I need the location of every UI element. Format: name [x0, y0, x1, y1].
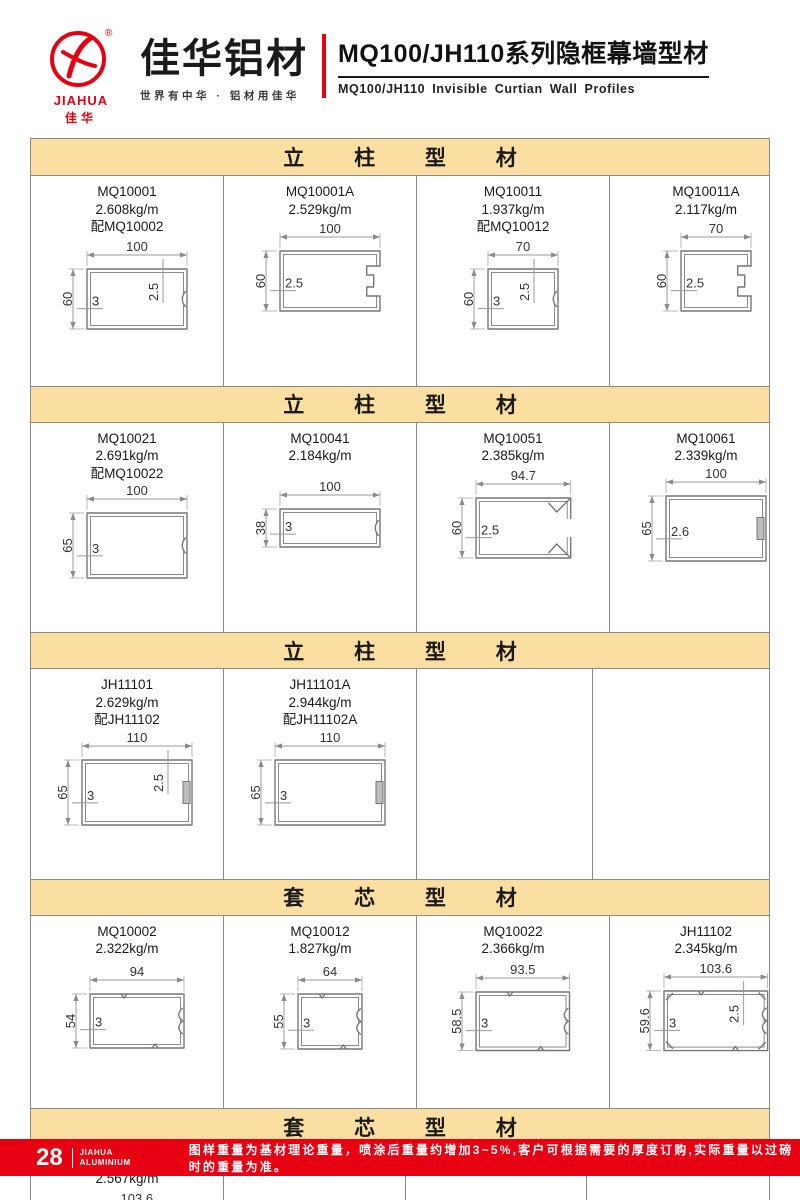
svg-text:65: 65 — [60, 539, 75, 553]
profile-match: 配MQ10012 — [417, 218, 609, 236]
section-header-label: 立 柱 型 材 — [283, 142, 539, 172]
profile-cell-mq10041: MQ100412.184kg/m100383 — [224, 423, 417, 633]
profile-weight: 2.529kg/m — [224, 201, 416, 219]
svg-text:60: 60 — [60, 291, 75, 305]
footer-disclaimer: 图样重量为基材理论重量，喷涂后重量约增加3~5%,客户可根据需要的厚度订购,实际… — [189, 1141, 800, 1175]
catalog-body: 立 柱 型 材MQ100012.608kg/m配MQ100021006032.5… — [30, 138, 770, 1200]
profile-diagram-mq10061: 100652.6 — [610, 465, 800, 615]
svg-text:59.6: 59.6 — [637, 1008, 652, 1033]
profile-diagram-jh11101a: 110653 — [224, 729, 416, 879]
profile-label: MQ100212.691kg/m配MQ10022 — [31, 430, 223, 483]
profile-weight: 1.827kg/m — [224, 940, 416, 958]
profile-diagram-mq10011: 706032.5 — [417, 236, 609, 386]
svg-text:2.5: 2.5 — [727, 1005, 742, 1023]
profile-row-3: JH111012.629kg/m配JH111021106532.5JH11101… — [31, 668, 769, 879]
logo-text-en: JIAHUA — [30, 93, 132, 108]
profile-label: MQ100512.385kg/m — [417, 430, 609, 465]
profile-cell-mq10051: MQ100512.385kg/m94.7602.5 — [417, 423, 610, 633]
section-header-label: 套 芯 型 材 — [283, 882, 539, 912]
svg-text:70: 70 — [709, 221, 723, 236]
profile-match: 配MQ10022 — [31, 465, 223, 483]
profile-diagram-mq10001: 1006032.5 — [31, 236, 223, 386]
svg-text:60: 60 — [449, 521, 464, 535]
footer-divider — [72, 1148, 73, 1168]
profile-cell-mq10011: MQ100111.937kg/m配MQ10012706032.5 — [417, 176, 610, 386]
page-subtitle: MQ100/JH110 Invisible Curtian Wall Profi… — [338, 82, 709, 96]
profile-diagram-mq10021: 100653 — [31, 482, 223, 632]
svg-text:100: 100 — [126, 483, 148, 498]
svg-text:60: 60 — [253, 274, 268, 288]
profile-cell-mq10021: MQ100212.691kg/m配MQ10022100653 — [31, 423, 224, 633]
section-header-label: 套 芯 型 材 — [283, 1112, 539, 1142]
profile-label: JH11101A2.944kg/m配JH11102A — [224, 676, 416, 729]
profile-weight: 2.691kg/m — [31, 447, 223, 465]
company-slogan: 世界有中华 · 铝材用佳华 — [140, 88, 308, 103]
profile-label: JH111022.345kg/m — [610, 923, 800, 958]
profile-weight: 2.339kg/m — [610, 447, 800, 465]
svg-text:3: 3 — [285, 519, 292, 534]
svg-text:3: 3 — [493, 293, 500, 308]
profile-weight: 2.117kg/m — [610, 201, 800, 219]
company-block: 佳华铝材 世界有中华 · 铝材用佳华 — [140, 26, 308, 103]
profile-diagram-mq10001a: 100602.5 — [224, 218, 416, 368]
profile-label: MQ100222.366kg/m — [417, 923, 609, 958]
profile-diagram-jh11102: 103.659.632.5 — [610, 958, 800, 1108]
svg-text:2.5: 2.5 — [151, 774, 166, 792]
profile-label: MQ100121.827kg/m — [224, 923, 416, 958]
svg-text:60: 60 — [654, 274, 669, 288]
profile-code: JH11101A — [224, 676, 416, 694]
svg-text:65: 65 — [639, 521, 654, 535]
svg-text:103.6: 103.6 — [121, 1191, 154, 1200]
profile-diagram-mq10011a: 70602.5 — [610, 218, 800, 368]
svg-text:2.5: 2.5 — [517, 283, 532, 301]
profile-code: MQ10041 — [224, 430, 416, 448]
profile-table: 立 柱 型 材MQ100012.608kg/m配MQ100021006032.5… — [30, 138, 770, 1200]
profile-code: MQ10011 — [417, 183, 609, 201]
svg-text:60: 60 — [461, 291, 476, 305]
page-title: MQ100/JH110系列隐框幕墙型材 — [338, 34, 709, 78]
svg-text:3: 3 — [87, 788, 94, 803]
profile-label: MQ100022.322kg/m — [31, 923, 223, 958]
title-block: MQ100/JH110系列隐框幕墙型材 MQ100/JH110 Invisibl… — [338, 26, 709, 96]
profile-cell-mq10001a: MQ10001A2.529kg/m100602.5 — [224, 176, 417, 386]
svg-text:94: 94 — [130, 964, 144, 979]
profile-code: MQ10002 — [31, 923, 223, 941]
svg-text:100: 100 — [319, 221, 341, 236]
profile-weight: 2.385kg/m — [417, 447, 609, 465]
svg-text:3: 3 — [95, 1015, 102, 1030]
section-header-1: 立 柱 型 材 — [31, 139, 769, 175]
section-header-label: 立 柱 型 材 — [283, 636, 539, 666]
profile-diagram-mq10051: 94.7602.5 — [417, 465, 609, 615]
profile-label: MQ10001A2.529kg/m — [224, 183, 416, 218]
profile-diagram-mq10022: 93.558.53 — [417, 958, 609, 1108]
section-header-4: 套 芯 型 材 — [31, 879, 769, 915]
profile-code: MQ10001A — [224, 183, 416, 201]
section-header-label: 立 柱 型 材 — [283, 389, 539, 419]
svg-text:103.6: 103.6 — [700, 961, 733, 976]
profile-label: MQ10011A2.117kg/m — [610, 183, 800, 218]
svg-text:38: 38 — [253, 521, 268, 535]
svg-text:58.5: 58.5 — [449, 1009, 464, 1034]
svg-text:3: 3 — [481, 1016, 488, 1031]
section-header-2: 立 柱 型 材 — [31, 386, 769, 422]
svg-text:100: 100 — [705, 466, 727, 481]
profile-code: MQ10001 — [31, 183, 223, 201]
profile-code: MQ10011A — [610, 183, 800, 201]
profile-row-1: MQ100012.608kg/m配MQ100021006032.5MQ10001… — [31, 175, 769, 386]
footer-brand-line1: JIAHUA — [80, 1148, 131, 1157]
catalog-page: ® JIAHUA 佳华 佳华铝材 世界有中华 · 铝材用佳华 MQ100/JH1… — [0, 0, 800, 1200]
svg-text:55: 55 — [271, 1014, 286, 1028]
profile-code: MQ10022 — [417, 923, 609, 941]
svg-text:3: 3 — [280, 788, 287, 803]
svg-text:2.5: 2.5 — [686, 276, 704, 291]
profile-diagram-jh11101: 1106532.5 — [31, 729, 223, 879]
svg-text:54: 54 — [63, 1014, 78, 1028]
profile-diagram-jh11102a: 103.658.53 — [31, 1187, 223, 1200]
page-header: ® JIAHUA 佳华 佳华铝材 世界有中华 · 铝材用佳华 MQ100/JH1… — [0, 0, 800, 136]
profile-code: MQ10021 — [31, 430, 223, 448]
svg-text:100: 100 — [126, 239, 148, 254]
svg-text:93.5: 93.5 — [510, 962, 535, 977]
profile-cell-mq10002: MQ100022.322kg/m94543 — [31, 916, 224, 1108]
profile-weight: 2.608kg/m — [31, 201, 223, 219]
profile-label: MQ100111.937kg/m配MQ10012 — [417, 183, 609, 236]
svg-text:3: 3 — [92, 293, 99, 308]
svg-text:65: 65 — [248, 785, 263, 799]
svg-text:3: 3 — [303, 1015, 310, 1030]
svg-text:2.6: 2.6 — [671, 524, 689, 539]
profile-weight: 2.944kg/m — [224, 694, 416, 712]
profile-cell-mq10011a: MQ10011A2.117kg/m70602.5 — [610, 176, 800, 386]
profile-label: MQ100012.608kg/m配MQ10002 — [31, 183, 223, 236]
svg-text:2.5: 2.5 — [285, 276, 303, 291]
profile-weight: 2.184kg/m — [224, 447, 416, 465]
profile-cell-mq10001: MQ100012.608kg/m配MQ100021006032.5 — [31, 176, 224, 386]
profile-code: JH11102 — [610, 923, 800, 941]
profile-diagram-mq10002: 94543 — [31, 958, 223, 1108]
svg-text:100: 100 — [319, 479, 341, 494]
svg-text:3: 3 — [669, 1015, 676, 1030]
profile-cell-mq10012: MQ100121.827kg/m64553 — [224, 916, 417, 1108]
company-name: 佳华铝材 — [140, 38, 308, 80]
svg-text:65: 65 — [55, 785, 70, 799]
profile-diagram-mq10041: 100383 — [224, 465, 416, 615]
page-number: 28 — [36, 1144, 63, 1172]
empty-cell — [417, 669, 593, 879]
logo-text-cn: 佳华 — [30, 109, 132, 126]
profile-code: JH11101 — [31, 676, 223, 694]
jiahua-logo-icon: ® — [47, 26, 115, 92]
profile-cell-jh11102: JH111022.345kg/m103.659.632.5 — [610, 916, 800, 1108]
svg-text:110: 110 — [127, 730, 148, 745]
profile-weight: 2.322kg/m — [31, 940, 223, 958]
footer-brand: JIAHUA ALUMINIUM — [80, 1148, 131, 1166]
profile-code: MQ10012 — [224, 923, 416, 941]
profile-weight: 2.366kg/m — [417, 940, 609, 958]
profile-cell-jh11101: JH111012.629kg/m配JH111021106532.5 — [31, 669, 224, 879]
profile-cell-jh11101a: JH11101A2.944kg/m配JH11102A110653 — [224, 669, 417, 879]
profile-weight: 1.937kg/m — [417, 201, 609, 219]
profile-row-2: MQ100212.691kg/m配MQ10022100653MQ100412.1… — [31, 422, 769, 633]
page-footer: 28 JIAHUA ALUMINIUM 图样重量为基材理论重量，喷涂后重量约增加… — [0, 1139, 800, 1176]
svg-text:110: 110 — [320, 730, 341, 745]
profile-label: MQ100612.339kg/m — [610, 430, 800, 465]
profile-label: MQ100412.184kg/m — [224, 430, 416, 465]
footer-brand-line2: ALUMINIUM — [80, 1158, 131, 1167]
profile-match: 配JH11102A — [224, 711, 416, 729]
profile-code: MQ10051 — [417, 430, 609, 448]
svg-text:64: 64 — [323, 964, 337, 979]
empty-cell — [593, 669, 769, 879]
profile-diagram-mq10012: 64553 — [224, 958, 416, 1108]
profile-weight: 2.345kg/m — [610, 940, 800, 958]
header-divider — [322, 34, 326, 98]
svg-text:70: 70 — [516, 239, 530, 254]
profile-match: 配JH11102 — [31, 711, 223, 729]
profile-code: MQ10061 — [610, 430, 800, 448]
svg-text:3: 3 — [92, 541, 99, 556]
profile-cell-mq10022: MQ100222.366kg/m93.558.53 — [417, 916, 610, 1108]
section-header-3: 立 柱 型 材 — [31, 632, 769, 668]
profile-row-4: MQ100022.322kg/m94543MQ100121.827kg/m645… — [31, 915, 769, 1108]
svg-text:2.5: 2.5 — [481, 522, 499, 537]
profile-cell-mq10061: MQ100612.339kg/m100652.6 — [610, 423, 800, 633]
profile-match: 配MQ10002 — [31, 218, 223, 236]
brand-logo: ® JIAHUA 佳华 — [30, 26, 132, 126]
svg-text:2.5: 2.5 — [146, 283, 161, 301]
profile-weight: 2.629kg/m — [31, 694, 223, 712]
registered-mark: ® — [105, 28, 113, 39]
profile-label: JH111012.629kg/m配JH11102 — [31, 676, 223, 729]
svg-text:94.7: 94.7 — [511, 468, 536, 483]
